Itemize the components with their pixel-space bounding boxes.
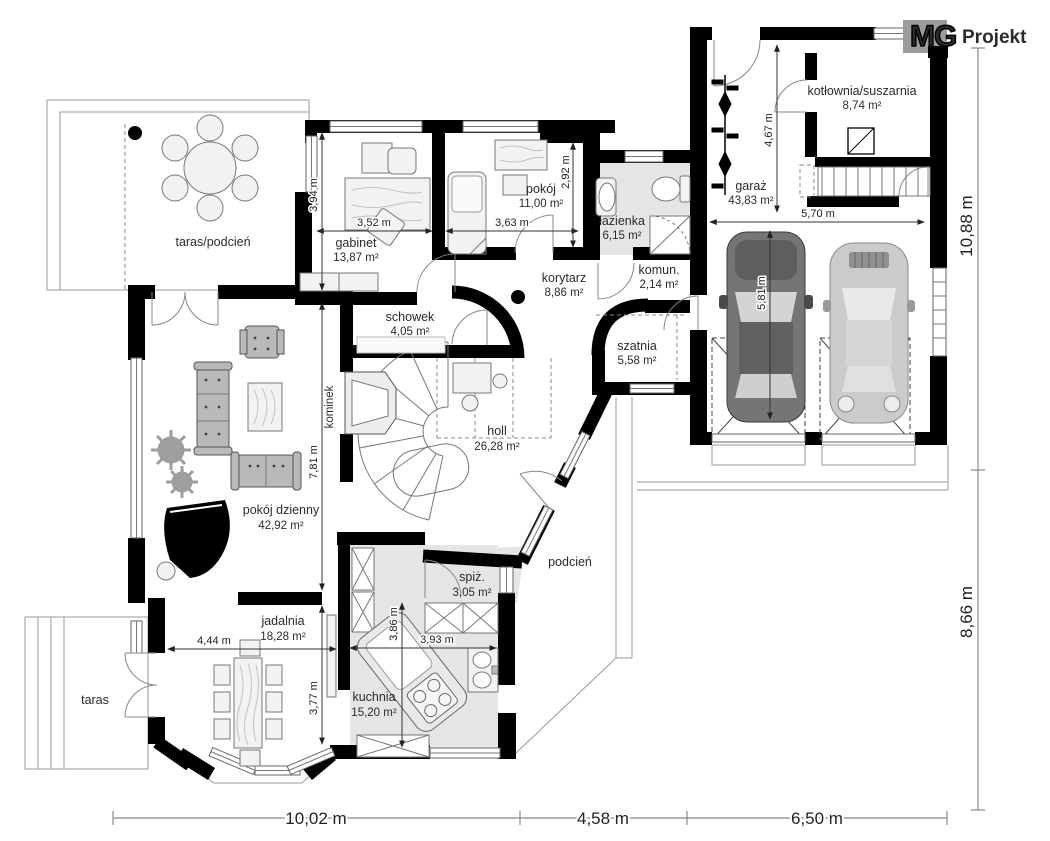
room-area-spiz: 3,05 m² — [453, 587, 492, 599]
window — [430, 748, 500, 758]
room-label-kuchnia: kuchnia — [352, 690, 395, 704]
living-furniture — [151, 326, 301, 580]
room-area-kotlownia: 8,74 m² — [843, 100, 882, 112]
door-arc — [152, 292, 185, 325]
room-label-spiz: spiż. — [459, 570, 485, 584]
dim-car-length: 5,81 m — [756, 276, 768, 310]
staircase-basement — [800, 165, 930, 197]
floor-plan-drawing: 3,52 m 3,63 m 2,92 m 3,94 m 4,67 m 5,70 … — [0, 0, 1050, 841]
room-label-holl: holl — [487, 424, 506, 438]
logo-mg: MG — [910, 20, 956, 53]
dim-total-right-bottom: 8,66 m — [957, 586, 976, 638]
room-label-szatnia: szatnia — [617, 339, 657, 353]
room-area-holl: 26,28 m² — [474, 441, 520, 453]
desk — [503, 175, 527, 195]
shower-icon — [650, 216, 690, 254]
plant-icon — [151, 430, 198, 498]
kitchen-sink-icon — [468, 648, 498, 692]
column-dot — [128, 126, 142, 140]
room-area-gabinet: 13,87 m² — [333, 252, 379, 264]
pokoj-furniture — [448, 140, 547, 254]
room-label-taras: taras — [81, 693, 109, 707]
terrace-chair — [232, 175, 258, 201]
terrace-chair — [232, 135, 258, 161]
room-label-schowek: schowek — [386, 310, 435, 324]
dim-gabinet-width: 3,52 m — [357, 217, 391, 229]
dining-chair — [214, 719, 230, 739]
toilet-icon — [652, 176, 690, 202]
sofa-small — [231, 452, 301, 490]
door-arc — [775, 80, 807, 112]
room-area-schowek: 4,05 m² — [391, 326, 430, 338]
dim-living-height: 7,81 m — [308, 445, 320, 479]
room-label-pokoj-dzienny: pokój dzienny — [243, 503, 320, 517]
logo: MG Projekt — [903, 20, 1027, 58]
dining-chair — [214, 692, 230, 712]
table — [453, 363, 491, 393]
washbasin-icon — [596, 178, 616, 216]
dining-chair — [266, 665, 282, 685]
window — [630, 384, 674, 393]
room-area-kuchnia: 15,20 m² — [351, 707, 397, 719]
floor-plan-page: 3,52 m 3,63 m 2,92 m 3,94 m 4,67 m 5,70 … — [0, 0, 1050, 841]
door-arc — [714, 40, 760, 86]
chair — [388, 148, 416, 174]
dim-jadalnia-height: 3,77 m — [308, 681, 320, 715]
room-area-pokoj-dzienny: 42,92 m² — [258, 520, 304, 532]
bed — [448, 172, 486, 254]
room-area-korytarz: 8,86 m² — [545, 287, 584, 299]
logo-projekt: Projekt — [962, 27, 1027, 48]
room-area-jadalnia: 18,28 m² — [260, 631, 306, 643]
terrace-chair — [197, 115, 223, 141]
door-arc — [125, 653, 157, 685]
dining-chair — [240, 750, 260, 766]
wardrobe — [495, 140, 547, 170]
counter-cabinet — [463, 603, 498, 633]
dim-kuchnia-height: 3,86 m — [388, 607, 400, 641]
room-area-lazienka: 6,15 m² — [603, 230, 642, 242]
window — [500, 567, 513, 593]
sideboard — [327, 615, 336, 697]
dim-kuchnia-width: 3,93 m — [420, 634, 454, 646]
room-area-komun: 2,14 m² — [640, 279, 679, 291]
window — [625, 151, 663, 162]
stool — [493, 374, 507, 388]
door-arc — [899, 167, 928, 196]
dining-table — [234, 658, 262, 748]
window — [521, 506, 553, 556]
shelf — [357, 337, 445, 353]
tall-cabinet — [352, 548, 374, 590]
room-label-kominek: kominek — [324, 385, 336, 428]
coffee-table — [248, 383, 282, 431]
sofa-large — [194, 362, 232, 455]
dim-jadalnia-width: 4,44 m — [197, 635, 231, 647]
room-label-jadalnia: jadalnia — [260, 614, 304, 628]
dining-chair — [214, 665, 230, 685]
piano-stool — [157, 562, 175, 580]
room-label-garaz: garaż — [735, 179, 766, 193]
fireplace — [345, 372, 396, 434]
dim-total-bottom-left: 10,02 m — [285, 809, 346, 828]
window — [933, 268, 946, 356]
dim-total-right-top: 10,88 m — [957, 195, 976, 256]
dim-garaz-height: 4,67 m — [763, 113, 775, 147]
piano — [157, 500, 230, 580]
dim-garaz-width: 5,70 m — [801, 208, 835, 220]
dining-chair — [266, 719, 282, 739]
dim-pokoj-height: 2,92 m — [560, 155, 572, 189]
counter-cabinet — [357, 735, 429, 757]
round-table-set — [162, 115, 258, 221]
dim-pokoj-width: 3,63 m — [495, 217, 529, 229]
room-label-kotlownia: kotłownia/suszarnia — [807, 84, 916, 98]
terrace-chair — [162, 135, 188, 161]
room-label-korytarz: korytarz — [542, 271, 586, 285]
door-arc — [452, 310, 487, 345]
room-label-gabinet: gabinet — [335, 236, 377, 250]
car-dark — [719, 232, 813, 422]
room-area-pokoj: 11,00 m² — [519, 198, 564, 210]
terrace-chair — [162, 175, 188, 201]
section-marker-icon — [712, 75, 738, 195]
room-label-komun: komun. — [639, 263, 680, 277]
door-arc — [185, 292, 218, 325]
dim-total-bottom-mid: 4,58 m — [577, 809, 629, 828]
window — [463, 121, 538, 132]
driveway-outline — [637, 445, 948, 490]
dining-chair — [266, 692, 282, 712]
car-light — [823, 243, 915, 423]
dim-total-bottom-right: 6,50 m — [791, 809, 843, 828]
window — [560, 432, 590, 479]
door-arc — [598, 263, 634, 299]
window — [131, 621, 142, 653]
column-dot — [511, 290, 525, 304]
stool — [462, 395, 478, 411]
dim-gabinet-height: 3,94 m — [308, 178, 320, 212]
room-area-szatnia: 5,58 m² — [618, 355, 657, 367]
dining-chair — [240, 640, 260, 656]
window — [131, 358, 142, 538]
door-arc — [520, 471, 562, 508]
boiler-icon — [848, 128, 874, 154]
tall-cabinet — [352, 592, 374, 632]
armchair — [240, 326, 284, 358]
room-label-lazienka: łazienka — [599, 214, 645, 228]
room-label-taras-podcien: taras/podcień — [175, 235, 250, 249]
door-arc — [125, 685, 157, 717]
room-label-podcien: podcień — [548, 555, 592, 569]
counter-cabinet — [425, 603, 463, 633]
room-label-pokoj: pokój — [526, 182, 556, 196]
sideboard — [300, 273, 378, 291]
terrace-chair — [197, 195, 223, 221]
room-area-garaz: 43,83 m² — [728, 195, 774, 207]
window — [330, 121, 422, 132]
